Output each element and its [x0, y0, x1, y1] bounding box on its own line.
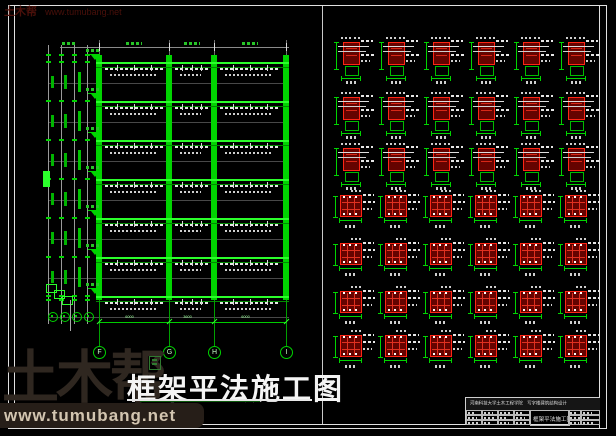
- section-rebar-v: [347, 197, 348, 215]
- section-rebar-v: [572, 293, 573, 311]
- detail-dim-bracket: [335, 244, 336, 266]
- anno-above: [476, 92, 486, 94]
- detail-dim-bracket: [515, 196, 516, 218]
- stirrup-tick: [201, 182, 202, 188]
- level-elevation-text: [86, 205, 100, 208]
- anno-right: [406, 115, 415, 117]
- joint-rebar: [346, 110, 357, 111]
- rebar-dot: [535, 261, 537, 263]
- detail-dim-bracket-tick: [468, 196, 473, 197]
- joint-rebar: [481, 103, 492, 104]
- anno-above: [386, 37, 396, 39]
- stirrup-tick: [233, 260, 234, 266]
- detail-ref-bubble: [48, 312, 58, 322]
- chain-tick: [72, 217, 77, 219]
- anno-above: [534, 37, 542, 39]
- stirrup-tick: [182, 65, 183, 71]
- detail-dim-bracket-tick: [333, 217, 338, 218]
- title-block-header-text: 河南科技大学土木工程学院 写字楼建筑结构设计: [470, 400, 567, 406]
- anno-right: [541, 60, 550, 62]
- detail-dim-bracket: [470, 292, 471, 314]
- detail-label: [525, 365, 536, 368]
- anno-right: [496, 40, 508, 42]
- story-height-text: [78, 111, 81, 131]
- detail-dim-line: [476, 184, 496, 185]
- anno-right: [451, 60, 460, 62]
- top-dim-tick: [286, 43, 287, 51]
- beam-bar-line: [428, 46, 459, 47]
- stirrup-tick: [201, 260, 202, 266]
- detail-dim-line: [521, 184, 541, 185]
- anno-right: [408, 242, 419, 244]
- column-detail-cell: [513, 332, 555, 378]
- detail-dim-bracket-tick: [333, 244, 338, 245]
- detail-dim-line: [431, 133, 451, 134]
- joint-rebar: [346, 55, 357, 56]
- detail-dim-tick: [386, 182, 387, 187]
- column-below-outline: [435, 66, 449, 76]
- column-section: [565, 291, 587, 313]
- beam-bar-line: [338, 106, 366, 107]
- detail-dim-bracket-tick: [469, 42, 474, 43]
- section-rebar-h: [522, 202, 540, 203]
- beam-bar-line: [473, 51, 501, 52]
- rebar-dot: [433, 309, 435, 311]
- anno-above: [341, 37, 351, 39]
- anno-above: [476, 143, 486, 145]
- anno-above: [576, 238, 588, 240]
- beam-bar-line: [383, 101, 414, 102]
- rebar-dot: [529, 244, 531, 246]
- bay-dim-text: 6000: [124, 315, 135, 319]
- column-section: [385, 243, 407, 265]
- detail-dim-bracket: [380, 196, 381, 218]
- chain-tick: [46, 256, 51, 258]
- anno-right: [451, 146, 463, 148]
- column-below-outline: [345, 66, 359, 76]
- detail-dim-bracket-tick: [468, 313, 473, 314]
- section-rebar-v: [482, 197, 483, 215]
- section-rebar-h: [432, 298, 450, 299]
- detail-dim-tick: [406, 218, 407, 223]
- level-elevation-text: [86, 166, 100, 169]
- rebar-dot: [484, 261, 486, 263]
- detail-dim-tick: [564, 266, 565, 271]
- rebar-dot: [445, 196, 447, 198]
- stirrup-tick: [267, 143, 268, 149]
- detail-dim-bracket-tick: [379, 97, 384, 98]
- level-elevation-text: [86, 283, 100, 286]
- beam-bar-line: [518, 46, 549, 47]
- bottom-axis-line: [214, 300, 215, 346]
- detail-label: [526, 81, 536, 84]
- detail-dim-line: [566, 133, 586, 134]
- beam-annotation-row: [110, 152, 156, 154]
- section-rebar-v: [347, 293, 348, 311]
- beam-annotation-row: [180, 152, 201, 154]
- anno-above: [521, 92, 531, 94]
- detail-dim-bracket-tick: [558, 244, 563, 245]
- title-block-right-grid: [568, 410, 600, 425]
- anno-right: [453, 341, 465, 343]
- axis-bubble: G: [163, 346, 176, 359]
- detail-dim-bracket-tick: [334, 175, 339, 176]
- detail-dim-bracket: [336, 42, 337, 70]
- beam-annotation-row: [110, 191, 156, 193]
- detail-dim-tick: [341, 131, 342, 136]
- detail-dim-tick: [451, 266, 452, 271]
- anno-above: [476, 37, 486, 39]
- anno-right: [498, 334, 509, 336]
- detail-dim-tick: [474, 358, 475, 363]
- rebar-dot: [439, 353, 441, 355]
- detail-dim-tick: [496, 358, 497, 363]
- anno-above: [396, 238, 408, 240]
- section-rebar-v: [527, 293, 528, 311]
- anno-right: [363, 242, 374, 244]
- beam-annotation-row: [110, 74, 156, 76]
- anno-above: [354, 37, 362, 39]
- detail-dim-bracket-tick: [333, 196, 338, 197]
- detail-dim-tick: [495, 182, 496, 187]
- anno-right: [588, 194, 599, 196]
- stirrup-tick: [134, 260, 135, 266]
- stirrup-tick: [250, 299, 251, 305]
- detail-dim-bracket-tick: [379, 175, 384, 176]
- level-elevation-text: [86, 88, 100, 91]
- detail-dim-tick: [519, 314, 520, 319]
- detail-dim-bracket: [336, 148, 337, 176]
- beam-bar-line: [428, 152, 459, 153]
- detail-dim-tick: [431, 182, 432, 187]
- section-rebar-v: [347, 337, 348, 355]
- detail-dim-tick: [566, 131, 567, 136]
- detail-dim-bracket-tick: [333, 292, 338, 293]
- column-detail-cell: [378, 143, 420, 189]
- rebar-dot: [349, 261, 351, 263]
- detail-dim-bracket: [560, 292, 561, 314]
- detail-dim-tick: [341, 76, 342, 81]
- detail-dim-line: [474, 268, 497, 269]
- title-block-cell-text: [468, 412, 474, 414]
- detail-dim-tick: [476, 182, 477, 187]
- detail-dim-line: [339, 316, 362, 317]
- rebar-dot: [394, 244, 396, 246]
- beam-bar-line: [428, 101, 459, 102]
- section-rebar-v: [392, 245, 393, 263]
- detail-dim-bracket-tick: [333, 265, 338, 266]
- joint-rebar: [346, 48, 357, 49]
- column-below-outline: [435, 121, 449, 131]
- anno-right: [496, 146, 508, 148]
- detail-dim-tick: [474, 314, 475, 319]
- anno-above: [444, 92, 452, 94]
- detail-dim-tick: [521, 182, 522, 187]
- anno-right: [586, 160, 599, 162]
- rebar-dot: [478, 336, 480, 338]
- detail-dim-tick: [341, 182, 342, 187]
- chain-tick: [85, 299, 90, 301]
- beam-bar-line: [563, 157, 591, 158]
- chain-tick: [46, 217, 51, 219]
- anno-right: [543, 194, 554, 196]
- detail-label: [345, 321, 356, 324]
- column-detail-cell: [558, 240, 600, 286]
- column-detail-cell: [378, 37, 420, 83]
- detail-dim-bracket-tick: [559, 175, 564, 176]
- detail-dim-tick: [586, 218, 587, 223]
- section-rebar-v: [392, 337, 393, 355]
- detail-dim-bracket-tick: [514, 97, 519, 98]
- chain-tick: [85, 139, 90, 141]
- section-rebar-h: [477, 202, 495, 203]
- detail-dim-bracket-tick: [379, 148, 384, 149]
- joint-rebar: [391, 48, 402, 49]
- anno-right: [453, 201, 465, 203]
- anno-right: [496, 166, 505, 168]
- rebar-dot: [400, 213, 402, 215]
- detail-dim-bracket-tick: [558, 313, 563, 314]
- beam-bar-line: [563, 152, 594, 153]
- section-rebar-h: [432, 342, 450, 343]
- detail-dim-line: [429, 360, 452, 361]
- stirrup-tick: [201, 221, 202, 227]
- story-height-text: [51, 193, 54, 205]
- rebar-dot: [529, 336, 531, 338]
- rebar-dot: [388, 336, 390, 338]
- rebar-dot: [523, 244, 525, 246]
- detail-label: [570, 225, 581, 228]
- rebar-dot: [388, 244, 390, 246]
- title-block-cell-text: [500, 422, 509, 424]
- anno-right: [361, 115, 370, 117]
- column-section: [385, 335, 407, 357]
- detail-dim-bracket-tick: [558, 357, 563, 358]
- section-rebar-h: [387, 298, 405, 299]
- section-rebar-v: [482, 245, 483, 263]
- anno-right: [361, 40, 373, 42]
- anno-right: [498, 256, 507, 258]
- column-below-outline: [390, 66, 404, 76]
- detail-dim-bracket-tick: [378, 265, 383, 266]
- detail-dim-tick: [386, 131, 387, 136]
- beam-annotation-row: [180, 113, 201, 115]
- story-height-text: [51, 76, 54, 88]
- joint-rebar: [571, 154, 582, 155]
- title-block-cell-text: [484, 417, 496, 419]
- detail-dim-tick: [496, 314, 497, 319]
- rebar-dot: [574, 244, 576, 246]
- detail-dim-tick: [450, 182, 451, 187]
- rebar-dot: [355, 213, 357, 215]
- column-detail-cell: [333, 143, 375, 189]
- beam-bar-line: [338, 46, 369, 47]
- title-block-cell-text: [570, 417, 582, 419]
- detail-label: [480, 273, 491, 276]
- anno-above: [441, 286, 453, 288]
- section-rebar-v: [392, 197, 393, 215]
- column-detail-cell: [423, 332, 465, 378]
- anno-right: [541, 109, 554, 111]
- rebar-dot: [439, 196, 441, 198]
- beam-bar-line: [518, 101, 549, 102]
- frame-beam-line: [96, 218, 289, 220]
- detail-dim-tick: [541, 218, 542, 223]
- stirrup-tick: [233, 182, 234, 188]
- detail-label: [346, 136, 356, 139]
- stirrup-tick: [151, 299, 152, 305]
- column-section: [475, 243, 497, 265]
- anno-right: [496, 95, 508, 97]
- detail-dim-bracket: [515, 292, 516, 314]
- anno-above: [354, 92, 362, 94]
- detail-dim-line: [474, 316, 497, 317]
- detail-dim-bracket-tick: [379, 42, 384, 43]
- detail-dim-tick: [384, 218, 385, 223]
- rebar-dot: [580, 309, 582, 311]
- detail-dim-bracket: [381, 148, 382, 176]
- anno-above: [444, 37, 452, 39]
- stirrup-tick: [151, 143, 152, 149]
- beam-bar-line: [383, 51, 411, 52]
- column-below-outline: [345, 121, 359, 131]
- column-detail-cell: [423, 240, 465, 286]
- column-detail-cell: [558, 143, 600, 189]
- beam-annotation-row: [225, 152, 273, 154]
- detail-dim-bracket-tick: [469, 69, 474, 70]
- stirrup-tick: [201, 299, 202, 305]
- title-block-cell-text: [468, 422, 480, 424]
- level-elevation-text: [86, 244, 100, 247]
- rebar-dot: [400, 353, 402, 355]
- beam-annotation-row: [225, 308, 273, 310]
- title-block-cell-text: [570, 412, 576, 414]
- stirrup-tick: [192, 221, 193, 227]
- anno-right: [588, 334, 599, 336]
- detail-dim-bracket-tick: [333, 313, 338, 314]
- rebar-dot: [439, 292, 441, 294]
- detail-dim-tick: [564, 358, 565, 363]
- anno-right: [451, 95, 463, 97]
- detail-dim-bracket: [470, 336, 471, 358]
- detail-dim-tick: [361, 218, 362, 223]
- detail-dim-tick: [360, 131, 361, 136]
- top-dim-tick: [214, 43, 215, 51]
- anno-right: [453, 249, 465, 251]
- detail-dim-bracket: [471, 97, 472, 125]
- rebar-dot: [433, 213, 435, 215]
- joint-rebar: [571, 161, 582, 162]
- frame-beam-line: [96, 257, 289, 259]
- column-detail-cell: [468, 288, 510, 334]
- beam-bar-line: [383, 152, 414, 153]
- beam-bar-line: [473, 157, 501, 158]
- section-rebar-v: [527, 197, 528, 215]
- detail-label: [525, 273, 536, 276]
- anno-above: [579, 92, 587, 94]
- cad-drawing-canvas: 土木帮 www.tumubang.net 600036006000FGHI 土木…: [0, 0, 616, 436]
- rebar-dot: [484, 309, 486, 311]
- anno-above: [396, 286, 408, 288]
- section-rebar-h: [342, 257, 360, 258]
- detail-label: [391, 136, 401, 139]
- rebar-dot: [580, 261, 582, 263]
- beam-bar-line: [473, 106, 501, 107]
- anno-right: [543, 290, 554, 292]
- rebar-dot: [343, 261, 345, 263]
- anno-right: [406, 60, 415, 62]
- section-rebar-h: [477, 349, 495, 350]
- rebar-dot: [394, 336, 396, 338]
- column-below-outline: [525, 172, 539, 182]
- rebar-dot: [343, 196, 345, 198]
- column-below-outline: [345, 172, 359, 182]
- detail-dim-tick: [450, 76, 451, 81]
- section-rebar-v: [527, 337, 528, 355]
- rebar-dot: [523, 196, 525, 198]
- rebar-dot: [343, 309, 345, 311]
- detail-dim-bracket-tick: [423, 292, 428, 293]
- anno-above: [351, 330, 363, 332]
- joint-rebar: [571, 103, 582, 104]
- section-rebar-v: [482, 293, 483, 311]
- section-rebar-v: [437, 245, 438, 263]
- section-rebar-v: [437, 337, 438, 355]
- anno-right: [363, 208, 372, 210]
- detail-dim-bracket-tick: [468, 292, 473, 293]
- section-rebar-v: [392, 293, 393, 311]
- column-below-outline: [570, 121, 584, 131]
- detail-dim-bracket-tick: [468, 244, 473, 245]
- anno-right: [586, 60, 595, 62]
- detail-dim-bracket-tick: [424, 148, 429, 149]
- detail-dim-bracket-tick: [333, 336, 338, 337]
- section-rebar-h: [567, 349, 585, 350]
- column-section: [565, 243, 587, 265]
- detail-label: [570, 273, 581, 276]
- detail-dim-bracket-tick: [513, 336, 518, 337]
- column-below-outline: [435, 172, 449, 182]
- joint-rebar: [346, 103, 357, 104]
- stirrup-tick: [151, 260, 152, 266]
- section-rebar-h: [432, 250, 450, 251]
- anno-above: [486, 190, 498, 192]
- rebar-dot: [568, 353, 570, 355]
- rebar-dot: [400, 336, 402, 338]
- rebar-dot: [388, 309, 390, 311]
- anno-above: [354, 143, 362, 145]
- anno-right: [453, 348, 462, 350]
- chain-tick: [72, 139, 77, 141]
- anno-right: [363, 249, 375, 251]
- story-height-text: [78, 150, 81, 170]
- anno-right: [543, 201, 555, 203]
- stirrup-tick: [267, 182, 268, 188]
- column-section: [385, 195, 407, 217]
- detail-ref-dot: [87, 315, 89, 317]
- detail-dim-bracket-tick: [379, 69, 384, 70]
- column-detail-cell: [333, 288, 375, 334]
- section-rebar-h: [522, 298, 540, 299]
- chain-tick: [85, 295, 90, 297]
- section-rebar-h: [387, 257, 405, 258]
- anno-right: [408, 256, 417, 258]
- joint-rebar: [391, 161, 402, 162]
- detail-dim-tick: [384, 266, 385, 271]
- rebar-dot: [400, 309, 402, 311]
- anno-right: [586, 109, 599, 111]
- anno-above: [441, 190, 453, 192]
